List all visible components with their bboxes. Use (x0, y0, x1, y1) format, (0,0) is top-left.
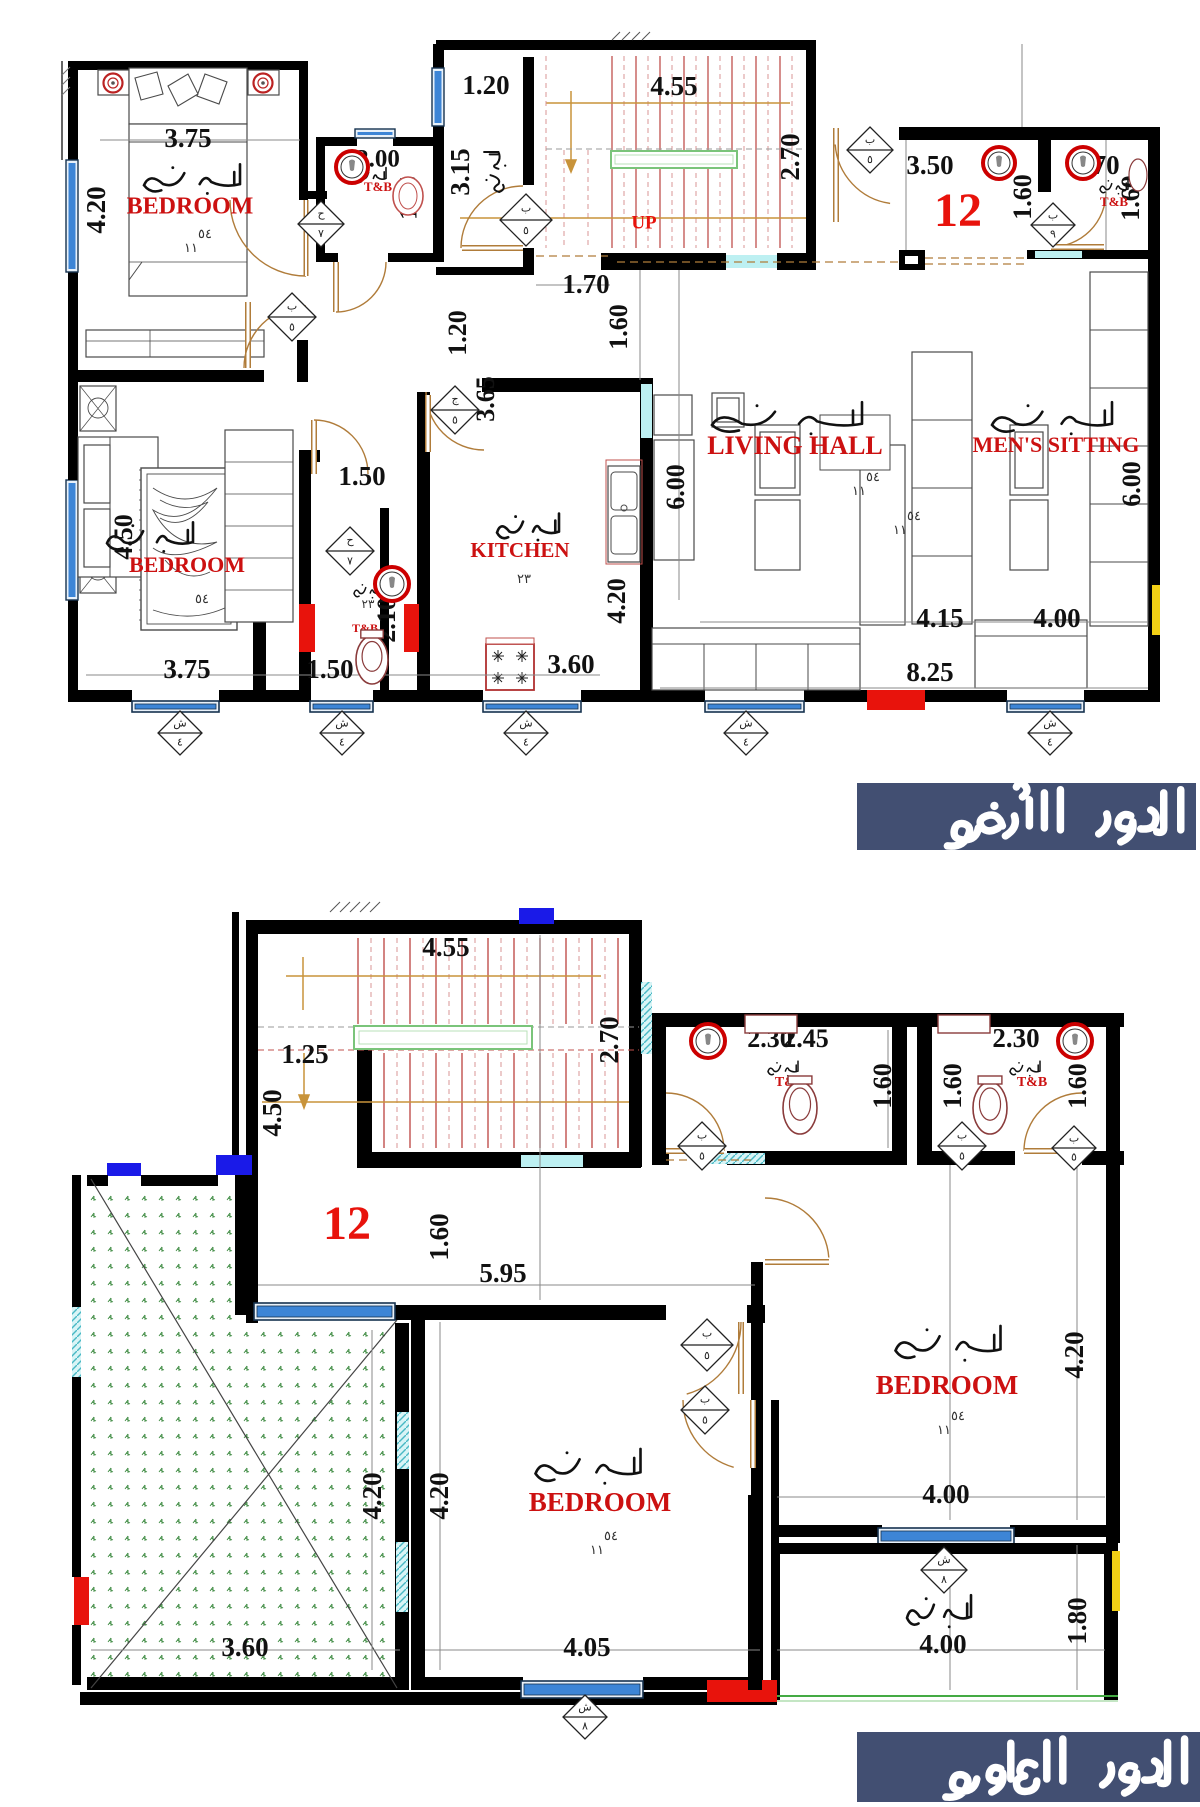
svg-text:ش: ش (937, 1554, 950, 1566)
svg-text:LIVING HALL: LIVING HALL (707, 431, 883, 460)
svg-text:BEDROOM: BEDROOM (876, 1370, 1019, 1400)
svg-text:4.55: 4.55 (422, 932, 469, 962)
svg-text:1.50: 1.50 (306, 654, 353, 684)
svg-text:١١: ١١ (184, 240, 198, 255)
svg-text:٨: ٨ (941, 1574, 947, 1586)
svg-text:١١: ١١ (937, 1422, 951, 1437)
svg-text:12: 12 (934, 184, 982, 237)
svg-text:ش: ش (739, 717, 752, 729)
svg-text:4.55: 4.55 (650, 71, 697, 101)
svg-text:٤: ٤ (339, 736, 345, 748)
svg-text:4.00: 4.00 (1033, 603, 1080, 633)
svg-text:٤: ٤ (1047, 736, 1053, 748)
svg-text:٥: ٥ (1071, 1151, 1077, 1163)
svg-text:ب: ب (700, 1393, 710, 1405)
svg-text:6.00: 6.00 (661, 464, 690, 510)
svg-text:٥: ٥ (867, 154, 873, 166)
svg-text:٥٤: ٥٤ (198, 226, 212, 241)
svg-text:ش: ش (578, 1701, 591, 1713)
svg-text:1.25: 1.25 (281, 1039, 328, 1069)
svg-text:3.75: 3.75 (163, 654, 210, 684)
svg-text:٥: ٥ (704, 1350, 710, 1362)
svg-text:٥: ٥ (702, 1414, 708, 1426)
svg-text:٤: ٤ (177, 736, 183, 748)
svg-text:٥: ٥ (699, 1150, 705, 1162)
svg-text:4.20: 4.20 (424, 1472, 454, 1519)
svg-text:3.75: 3.75 (164, 123, 211, 153)
svg-text:4.00: 4.00 (922, 1479, 969, 1509)
svg-text:1.60: 1.60 (604, 304, 633, 350)
svg-text:T&B: T&B (1017, 1075, 1047, 1090)
svg-text:٥: ٥ (523, 225, 529, 237)
svg-text:1.20: 1.20 (462, 70, 509, 100)
svg-text:5.95: 5.95 (479, 1258, 526, 1288)
svg-text:ب: ب (697, 1129, 707, 1141)
svg-text:4.20: 4.20 (81, 186, 111, 233)
svg-text:12: 12 (323, 1197, 371, 1250)
svg-text:٤: ٤ (523, 736, 529, 748)
svg-text:4.00: 4.00 (919, 1629, 966, 1659)
svg-text:٨: ٨ (582, 1720, 588, 1732)
svg-text:3.60: 3.60 (221, 1632, 268, 1662)
svg-text:٥: ٥ (959, 1150, 965, 1162)
svg-text:BEDROOM: BEDROOM (129, 552, 245, 577)
svg-text:ج: ج (451, 393, 459, 405)
svg-text:٥٤: ٥٤ (951, 1408, 965, 1423)
svg-text:4.20: 4.20 (1059, 1331, 1089, 1378)
svg-text:ش: ش (173, 717, 186, 729)
svg-text:BEDROOM: BEDROOM (529, 1487, 672, 1517)
svg-text:BEDROOM: BEDROOM (127, 194, 254, 220)
svg-text:ب: ب (865, 134, 875, 146)
svg-text:4.20: 4.20 (602, 578, 631, 624)
svg-text:٥: ٥ (452, 414, 458, 426)
svg-text:3.60: 3.60 (547, 649, 594, 679)
svg-text:KITCHEN: KITCHEN (470, 538, 569, 562)
svg-text:٢٣: ٢٣ (362, 597, 375, 611)
svg-text:ش: ش (519, 717, 532, 729)
svg-text:2.70: 2.70 (775, 133, 805, 180)
svg-text:١١: ١١ (590, 1542, 604, 1557)
svg-text:٩: ٩ (1050, 228, 1056, 240)
svg-text:٤: ٤ (743, 736, 749, 748)
svg-text:2.30: 2.30 (992, 1023, 1039, 1053)
svg-text:1.70: 1.70 (562, 269, 609, 299)
svg-text:1.80: 1.80 (1062, 1597, 1092, 1644)
svg-text:1.50: 1.50 (338, 461, 385, 491)
svg-text:ش: ش (335, 717, 348, 729)
svg-text:١١: ١١ (893, 522, 907, 537)
svg-text:٧: ٧ (318, 228, 324, 240)
svg-text:٧: ٧ (347, 555, 353, 567)
svg-text:ب: ب (702, 1328, 712, 1340)
svg-text:1.60: 1.60 (1008, 174, 1037, 220)
svg-text:T&B: T&B (364, 179, 393, 194)
svg-text:1.60: 1.60 (1063, 1063, 1092, 1109)
svg-text:ش: ش (1043, 717, 1056, 729)
svg-text:6.00: 6.00 (1117, 461, 1146, 507)
svg-text:٥: ٥ (289, 321, 295, 333)
svg-text:ب: ب (1048, 209, 1058, 221)
svg-text:4.50: 4.50 (257, 1089, 287, 1136)
svg-text:1.60: 1.60 (868, 1063, 897, 1109)
svg-text:T&B: T&B (1100, 194, 1129, 209)
svg-text:٥٤: ٥٤ (866, 469, 880, 484)
svg-text:UP: UP (631, 212, 657, 233)
svg-text:٥٤: ٥٤ (604, 1528, 618, 1543)
svg-text:1.20: 1.20 (443, 310, 472, 356)
svg-text:4.20: 4.20 (357, 1472, 387, 1519)
svg-text:٥٤: ٥٤ (195, 591, 209, 606)
svg-text:3.15: 3.15 (445, 148, 475, 195)
svg-text:4.05: 4.05 (563, 1632, 610, 1662)
svg-text:1.60: 1.60 (424, 1213, 454, 1260)
svg-text:2.70: 2.70 (594, 1016, 624, 1063)
svg-text:ح: ح (317, 208, 325, 220)
svg-text:ب: ب (957, 1129, 967, 1141)
svg-text:4.50: 4.50 (109, 514, 138, 560)
svg-text:1.60: 1.60 (938, 1063, 967, 1109)
svg-text:8.25: 8.25 (906, 657, 953, 687)
svg-text:4.15: 4.15 (916, 603, 963, 633)
svg-text:3.65: 3.65 (471, 376, 500, 422)
svg-text:١١: ١١ (852, 483, 866, 498)
svg-text:٢٣: ٢٣ (517, 571, 531, 586)
svg-text:ب: ب (521, 203, 531, 215)
svg-text:MEN'S SITTING: MEN'S SITTING (973, 432, 1140, 457)
svg-text:ب: ب (1069, 1132, 1079, 1144)
svg-text:3.50: 3.50 (906, 150, 953, 180)
svg-text:ح: ح (346, 534, 354, 546)
svg-text:ب: ب (287, 300, 297, 312)
svg-text:٥٤: ٥٤ (907, 508, 921, 523)
